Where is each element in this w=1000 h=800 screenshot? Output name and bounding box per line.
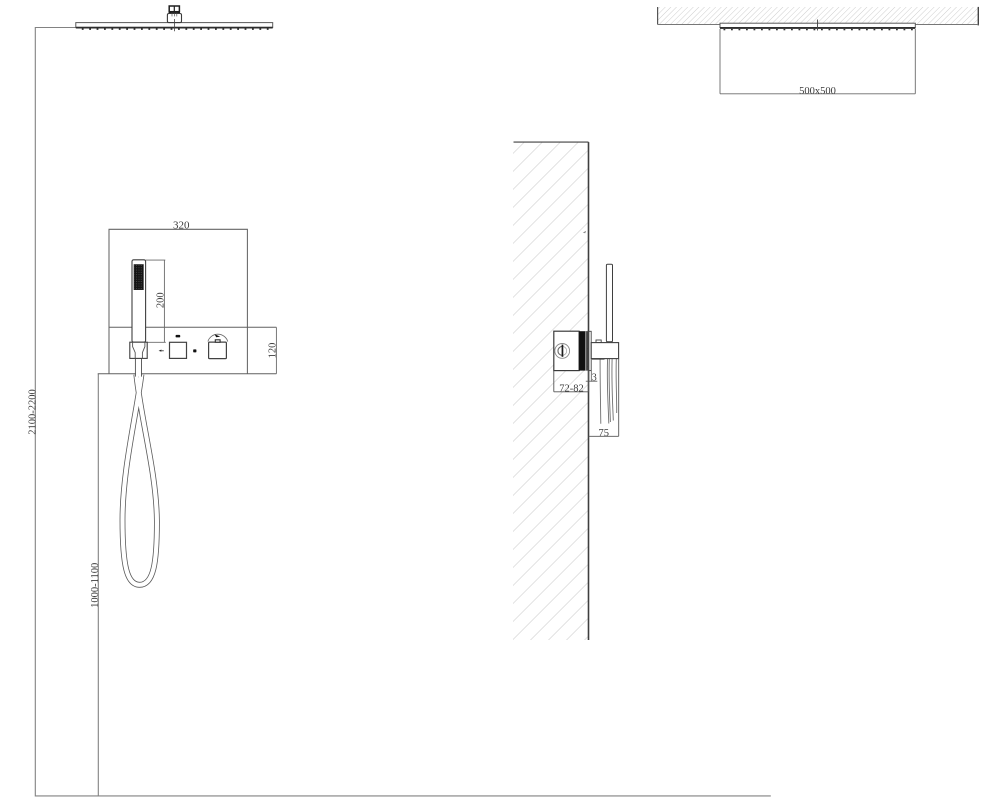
svg-text:75: 75	[599, 428, 610, 439]
svg-text:1000-1100: 1000-1100	[90, 563, 101, 608]
svg-text:200: 200	[156, 292, 167, 308]
svg-text:72-82: 72-82	[559, 384, 584, 395]
svg-text:2100-2200: 2100-2200	[27, 389, 38, 435]
svg-text:3: 3	[592, 372, 597, 383]
svg-text:320: 320	[173, 219, 190, 231]
svg-text:500x500: 500x500	[799, 86, 836, 97]
svg-text:120: 120	[268, 343, 279, 359]
